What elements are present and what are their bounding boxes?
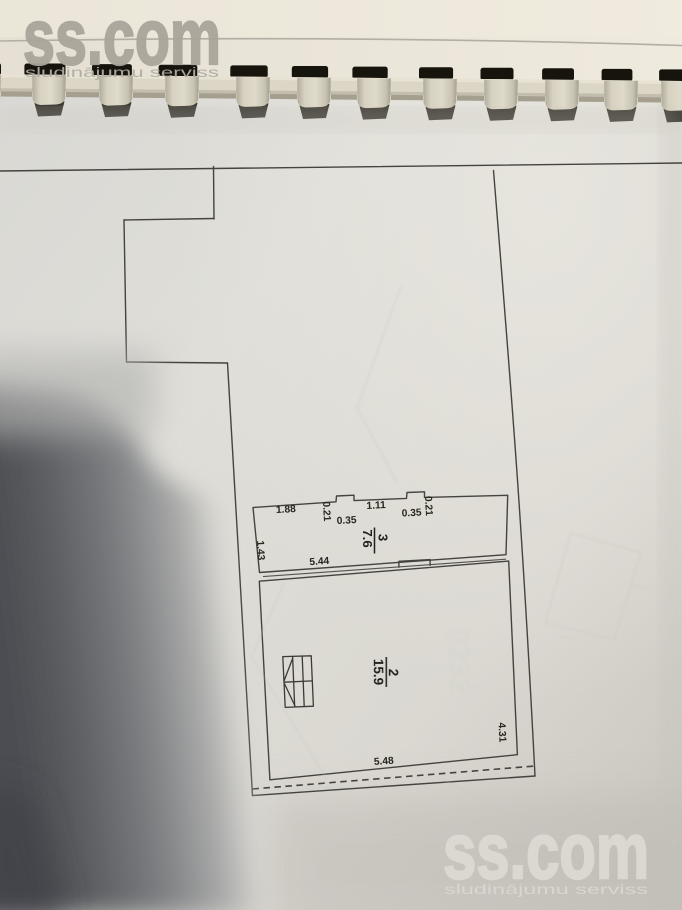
svg-text:3: 3 bbox=[376, 534, 391, 541]
svg-text:15.9: 15.9 bbox=[371, 659, 386, 685]
svg-text:sludinājumu serviss: sludinājumu serviss bbox=[25, 64, 219, 80]
svg-text:1.43: 1.43 bbox=[254, 540, 266, 561]
svg-text:0.35: 0.35 bbox=[337, 515, 358, 527]
svg-text:5.48: 5.48 bbox=[374, 756, 395, 768]
svg-text:1.88: 1.88 bbox=[276, 504, 297, 516]
svg-text:7.6: 7.6 bbox=[360, 529, 375, 547]
svg-text:0.35: 0.35 bbox=[402, 508, 423, 520]
svg-text:1.11: 1.11 bbox=[366, 500, 386, 512]
svg-text:5.44: 5.44 bbox=[309, 556, 330, 568]
svg-text:0.21: 0.21 bbox=[320, 501, 332, 522]
svg-text:sludinājumu serviss: sludinājumu serviss bbox=[444, 881, 648, 897]
svg-text:0.21: 0.21 bbox=[422, 496, 434, 517]
svg-text:2: 2 bbox=[386, 669, 401, 677]
svg-text:4.31: 4.31 bbox=[496, 722, 508, 743]
svg-text:0232: 0232 bbox=[441, 628, 476, 696]
